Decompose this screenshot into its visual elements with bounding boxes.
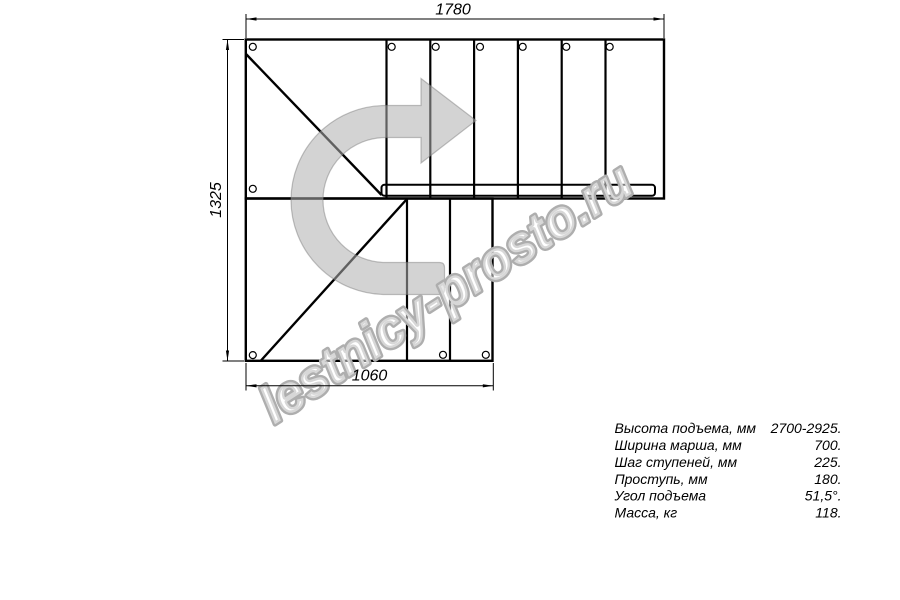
svg-text:118.: 118. bbox=[815, 505, 841, 521]
svg-text:700.: 700. bbox=[814, 437, 841, 453]
svg-text:1780: 1780 bbox=[435, 2, 471, 19]
svg-text:Ширина марша, мм: Ширина марша, мм bbox=[615, 437, 743, 453]
svg-text:Высота подъема, мм: Высота подъема, мм bbox=[615, 420, 757, 436]
svg-text:51,5°.: 51,5°. bbox=[805, 488, 842, 504]
svg-text:Угол подъема: Угол подъема bbox=[614, 488, 707, 504]
svg-text:Масса, кг: Масса, кг bbox=[615, 505, 678, 521]
svg-text:1060: 1060 bbox=[352, 368, 388, 385]
svg-text:Шаг ступеней, мм: Шаг ступеней, мм bbox=[615, 454, 738, 470]
svg-text:180.: 180. bbox=[814, 471, 841, 487]
svg-text:2700-2925.: 2700-2925. bbox=[770, 420, 842, 436]
svg-text:Проступь, мм: Проступь, мм bbox=[615, 471, 709, 487]
svg-text:1325: 1325 bbox=[208, 182, 225, 218]
svg-text:225.: 225. bbox=[813, 454, 841, 470]
